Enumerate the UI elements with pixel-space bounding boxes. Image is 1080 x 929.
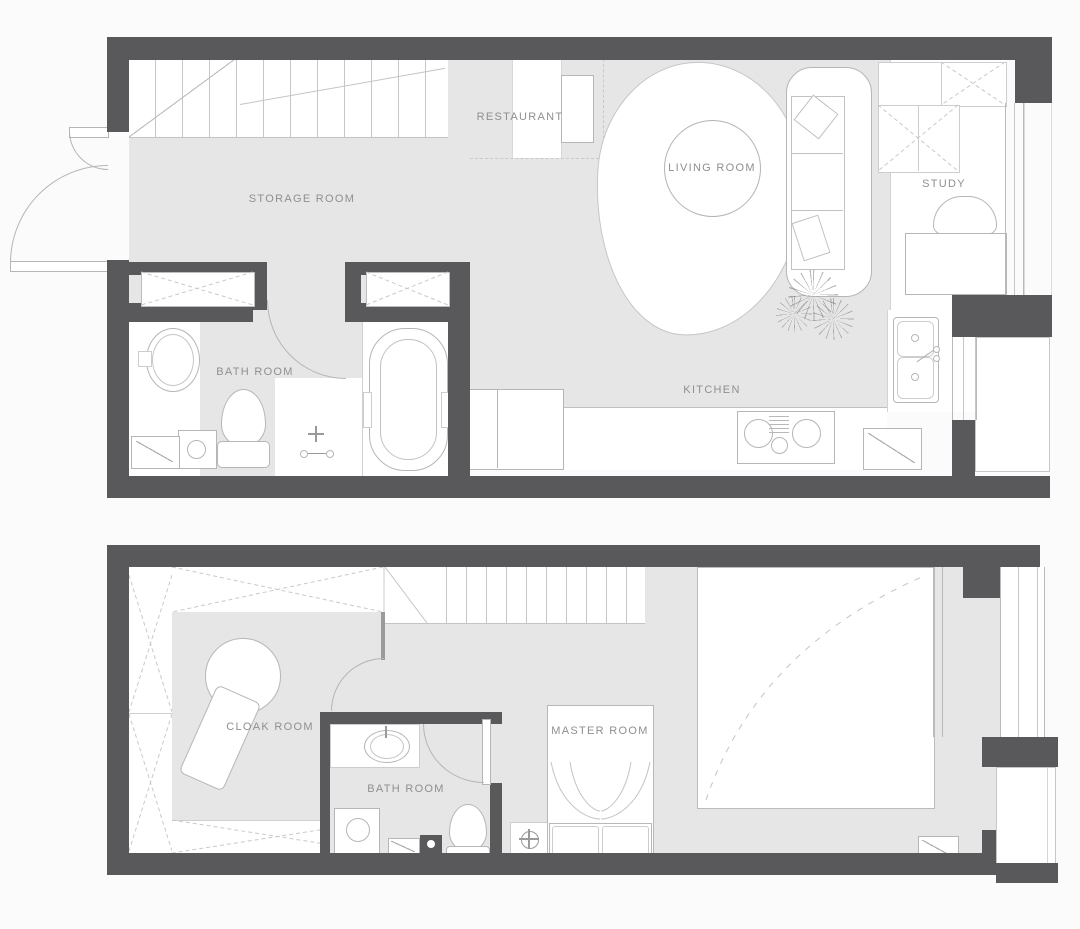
pillow [552, 826, 599, 855]
dining-table [561, 75, 594, 143]
drain-slope-line [136, 441, 173, 462]
study-desk [905, 233, 1007, 295]
closet-x-mark [366, 272, 448, 305]
wall [996, 863, 1058, 883]
cabinet-divider [918, 105, 919, 171]
drain-pan [863, 428, 922, 470]
sink-drain-icon [911, 373, 919, 381]
cabinet-divider [941, 62, 942, 105]
study-window [1005, 103, 1024, 296]
wall [107, 545, 1040, 567]
faucet-icon [933, 346, 940, 353]
room-label-restaurant: RESTAURANT [477, 111, 564, 123]
sofa-cushion-line [791, 153, 843, 154]
window-strip [1000, 567, 1045, 737]
wall [320, 724, 330, 855]
shower-drain-icon [308, 426, 324, 442]
fridge-door-line [497, 389, 498, 468]
window-mullion [1018, 567, 1019, 737]
pillow [602, 826, 649, 855]
plant-icon [812, 298, 854, 340]
room-label-kitchen: KITCHEN [683, 384, 740, 396]
stairs-diagonal-line [385, 567, 645, 623]
cabinet-x-mark [941, 62, 1005, 105]
shower-valve-icon [326, 450, 334, 458]
washer-drum-icon [187, 440, 206, 459]
wardrobe-x-mark [172, 567, 383, 612]
wall [107, 853, 996, 875]
bathtub-inner [380, 339, 437, 460]
room-label-bath2: BATH ROOM [367, 783, 445, 795]
floor-plan-drawing: RESTAURANT STORAGE ROOM LIVING ROOM STUD… [0, 0, 1080, 929]
plant-icon [776, 296, 812, 332]
exterior-ledge [1024, 103, 1052, 295]
drain-pan [131, 436, 180, 469]
wall [107, 567, 129, 875]
burner-icon [771, 437, 788, 454]
room-label-cloak: CLOAK ROOM [226, 721, 314, 733]
wardrobe-x-mark [129, 714, 172, 851]
burner-icon [792, 419, 821, 448]
bed-drape-lines [548, 759, 653, 825]
wall [107, 260, 129, 498]
double-height-void [697, 567, 935, 809]
wardrobe-divider [129, 713, 172, 714]
wall [448, 262, 470, 476]
shower-valve-icon [300, 450, 308, 458]
room-label-living: LIVING ROOM [668, 162, 756, 174]
wardrobe-x-mark [129, 575, 172, 712]
faucet-icon [385, 726, 387, 738]
washer-drum-icon [346, 818, 370, 842]
balcony-line [1047, 768, 1048, 864]
wall [107, 37, 1052, 60]
closet-x-mark [141, 272, 253, 305]
faucet-icon [933, 355, 940, 362]
wall [982, 737, 1058, 767]
door-stop-icon [427, 840, 435, 848]
wall [107, 60, 129, 132]
balcony [996, 767, 1056, 865]
toilet-bowl [449, 804, 487, 852]
bathroom-sink-inner [370, 734, 404, 759]
door-swing-arc [10, 165, 108, 263]
sofa-cushion-line [791, 210, 843, 211]
window-mullion [1014, 103, 1015, 296]
window-mullion [1037, 567, 1038, 737]
dining-bench [512, 59, 562, 158]
wall [253, 262, 267, 310]
bathtub-ledge [363, 392, 372, 428]
wall [490, 783, 502, 853]
window-mullion [963, 337, 964, 420]
drain-slope-line [868, 433, 915, 463]
balcony [975, 337, 1050, 472]
fridge [465, 389, 564, 470]
sink-drain-icon [911, 334, 919, 342]
kitchen-window [952, 337, 977, 420]
wall [963, 567, 1000, 598]
wall [982, 830, 996, 863]
room-label-bath1: BATH ROOM [216, 366, 294, 378]
wall [952, 295, 1052, 337]
bathroom-sink-inner [152, 334, 194, 386]
wall [490, 712, 502, 724]
window-mullion [933, 567, 943, 737]
stove-grill-icon [769, 416, 789, 434]
wall-stub [381, 612, 385, 660]
wall [320, 712, 502, 724]
toilet-tank [217, 441, 270, 468]
stairs-floor2 [385, 567, 645, 624]
stairs-diagonal-line [129, 59, 235, 137]
floor-drain-icon [521, 831, 539, 849]
room-label-master: MASTER ROOM [551, 725, 648, 737]
wall [107, 476, 1050, 498]
drain-slope-line [391, 841, 415, 852]
faucet-icon [138, 351, 152, 367]
room-label-study: STUDY [922, 178, 966, 190]
room-label-storage: STORAGE ROOM [249, 193, 355, 205]
shower-valve-icon [305, 453, 327, 454]
void-dashed-curve [698, 568, 934, 808]
wall [952, 420, 975, 476]
wall [1015, 60, 1052, 103]
